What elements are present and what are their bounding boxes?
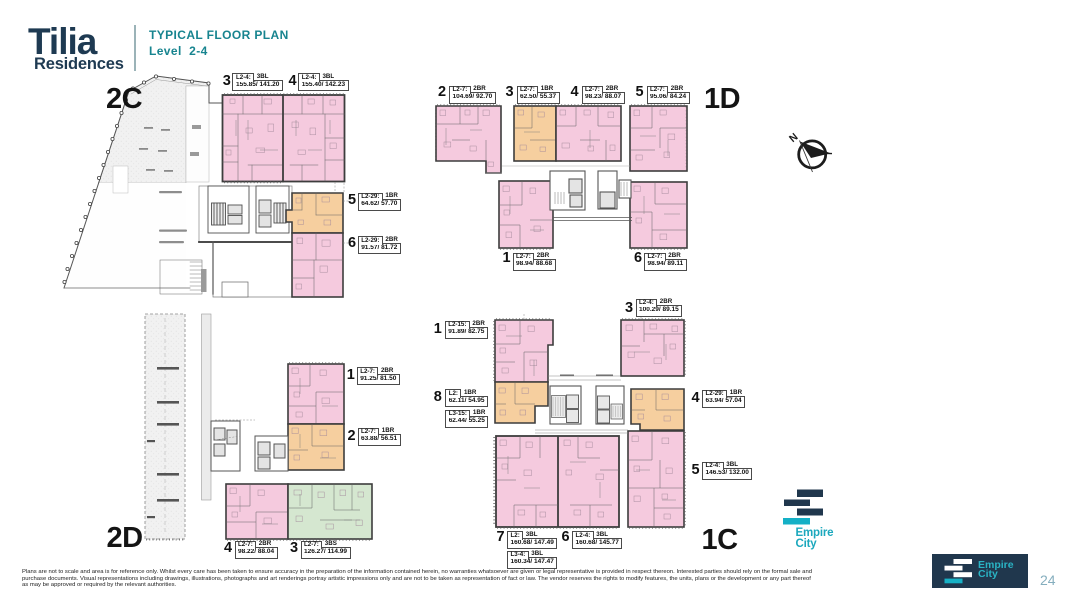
svg-text:N: N <box>787 131 801 145</box>
